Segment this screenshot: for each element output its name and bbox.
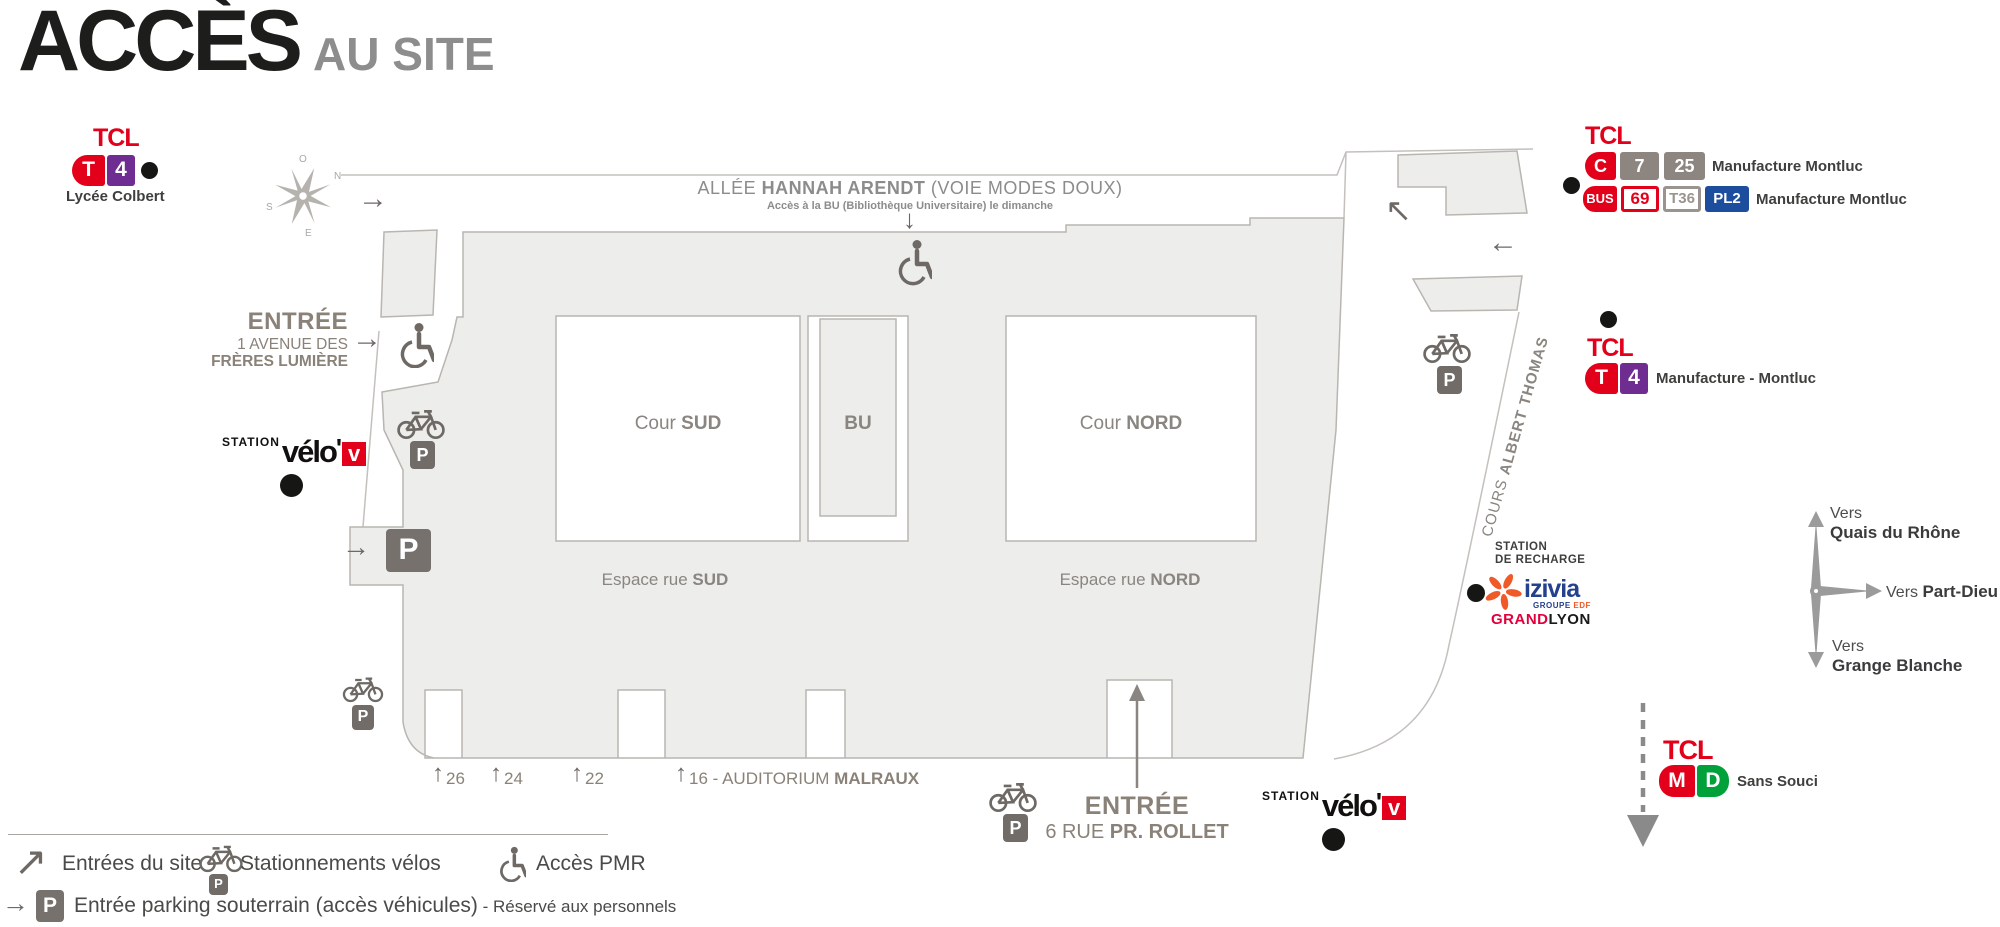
entrance-16-pre: 16 - AUDITORIUM	[689, 769, 834, 788]
entree-lumiere-arrow-icon: →	[352, 324, 382, 354]
bus-line-25-badge: 25	[1664, 152, 1705, 180]
bike-parking-icon-right	[1422, 330, 1472, 364]
legend-bike-p-badge: P	[209, 874, 228, 895]
legend-velos-label: Stationnements vélos	[240, 852, 441, 876]
bike-parking-p-badge-right: P	[1437, 366, 1462, 394]
title-main: ACCÈS	[18, 0, 299, 91]
entrance-26: ↑ 26	[432, 762, 465, 789]
entry-arrow-left-icon: ←	[1488, 228, 1518, 258]
izivia-edf: EDF	[1573, 601, 1591, 610]
allee-street-line	[341, 149, 1533, 175]
street-corner-line	[1344, 152, 1346, 218]
bus-line-pl2-badge: PL2	[1705, 186, 1749, 212]
compass-rose-icon: O N E S	[264, 154, 342, 239]
compass-n-label: N	[334, 171, 341, 182]
recharge-line1: STATION	[1495, 541, 1547, 554]
allee-pre: ALLÉE	[698, 178, 762, 198]
espace-rue-sud-label: Espace rue SUD	[565, 570, 765, 590]
espace-rue-nord-label: Espace rue NORD	[1030, 570, 1230, 590]
northwest-annex-building	[381, 230, 437, 317]
bike-parking-p-badge-left: P	[410, 441, 435, 469]
vers-right-name: Part-Dieu	[1922, 582, 1998, 601]
arrow-up-16-icon: ↑	[675, 762, 687, 786]
entree-lumiere-line1: 1 AVENUE DES	[183, 336, 348, 354]
cour-sud-label: Cour SUD	[578, 413, 778, 435]
velov-logo-word-bottom: vélo	[1322, 788, 1376, 824]
arrow-up-22-icon: ↑	[571, 762, 583, 786]
grand-lyon-lyon: LYON	[1549, 611, 1591, 628]
stop-name-t4-montluc: Manufacture - Montluc	[1656, 370, 1816, 387]
entree-lumiere-title: ENTRÉE	[183, 308, 348, 336]
cour-nord-label: Cour NORD	[1031, 413, 1231, 435]
velov-station-word-bottom: STATION	[1262, 790, 1320, 804]
velov-station-bottom: STATION vélo ' v	[1262, 788, 1406, 824]
entree-rollet-title: ENTRÉE	[1037, 792, 1237, 821]
izivia-logo-flower-icon	[1484, 573, 1522, 611]
stop-dot-colbert	[141, 162, 158, 179]
tcl-brand-metro: TCL	[1663, 735, 1712, 766]
entrance-24: ↑ 24	[490, 762, 523, 789]
espace-sud-pre: Espace rue	[602, 570, 693, 589]
compass-o-label: O	[299, 154, 307, 165]
bus-line-c-badge: C	[1585, 152, 1616, 180]
velov-station-word: STATION	[222, 436, 280, 450]
bus-line-t36-badge: T36	[1663, 186, 1701, 212]
cour-nord-bold: NORD	[1126, 413, 1182, 434]
bu-sunday-access-arrow-icon: ↓	[903, 206, 916, 232]
rollet-pre: 6 RUE	[1045, 821, 1109, 843]
entrance-22: ↑ 22	[571, 762, 604, 789]
entree-rollet-street: 6 RUE PR. ROLLET	[1037, 821, 1237, 844]
cour-sud-pre: Cour	[635, 413, 681, 434]
stop-dot-manufacture	[1563, 177, 1580, 194]
cour-sud-bold: SUD	[681, 413, 721, 434]
legend-separator	[8, 834, 608, 835]
velov-logo-v-box-bottom: v	[1382, 796, 1406, 820]
arrow-up-26-icon: ↑	[432, 762, 444, 786]
northeast-block-building	[1398, 151, 1527, 215]
vers-right-pre: Vers	[1886, 584, 1922, 601]
rollet-bold: PR. ROLLET	[1110, 821, 1229, 843]
metro-direction-dashed-arrow	[1627, 703, 1659, 847]
direction-grange-blanche: Vers Grange Blanche	[1832, 638, 1962, 677]
entree-lumiere-line2: FRÈRES LUMIÈRE	[183, 353, 348, 371]
legend-entry-arrow-icon: ↗	[14, 842, 48, 882]
title-sub: AU SITE	[313, 28, 494, 81]
velov-dot-bottom	[1322, 828, 1345, 851]
espace-nord-bold: NORD	[1150, 570, 1200, 589]
parking-entrance-p-badge: P	[386, 529, 431, 572]
allee-name: HANNAH ARENDT	[762, 178, 926, 198]
tram-line-4-badge: 4	[107, 155, 135, 186]
recharge-line2: DE RECHARGE	[1495, 554, 1585, 567]
direction-part-dieu: Vers Part-Dieu	[1886, 582, 1998, 602]
cour-nord-pre: Cour	[1080, 413, 1126, 434]
tcl-brand-right-top: TCL	[1585, 122, 1631, 151]
street-allee-hannah-arendt: ALLÉE HANNAH ARENDT (VOIE MODES DOUX)	[610, 178, 1210, 199]
izivia-brand-name: izivia	[1524, 575, 1579, 604]
izivia-groupe-edf: GROUPE EDF	[1533, 601, 1591, 610]
espace-sud-bold: SUD	[692, 570, 728, 589]
tram-line-t-badge-montluc: T	[1585, 363, 1618, 394]
entree-rollet-label: ENTRÉE 6 RUE PR. ROLLET	[1037, 792, 1237, 844]
grand-lyon-grand: GRAND	[1491, 611, 1549, 628]
tcl-brand-t4-montluc: TCL	[1587, 334, 1633, 363]
stop-name-manufacture-row1: Manufacture Montluc	[1712, 158, 1863, 175]
vers-up-name: Quais du Rhône	[1830, 523, 1960, 542]
espace-nord-pre: Espace rue	[1060, 570, 1151, 589]
entrance-16-bold: MALRAUX	[834, 769, 919, 788]
metro-line-d-badge: D	[1697, 765, 1729, 797]
velov-logo-word: vélo	[282, 434, 336, 470]
bus-line-69-badge: 69	[1621, 186, 1659, 212]
entrance-22-number: 22	[585, 769, 604, 789]
vers-down-pre: Vers	[1832, 638, 1962, 656]
entree-freres-lumiere-label: ENTRÉE 1 AVENUE DES FRÈRES LUMIÈRE	[183, 308, 348, 371]
metro-m-badge: M	[1659, 765, 1695, 797]
direction-quais-du-rhone: Vers Quais du Rhône	[1830, 505, 1960, 544]
bike-parking-p-badge-bottom-left: P	[352, 705, 374, 730]
stop-name-colbert: Lycée Colbert	[66, 188, 165, 205]
access-site-map-page: O N E S ACCÈS AU SITE TCL	[0, 0, 2000, 927]
legend-pmr-icon	[498, 846, 526, 882]
entrance-16-label: 16 - AUDITORIUM MALRAUX	[689, 769, 919, 789]
east-block-building	[1413, 276, 1522, 311]
page-title: ACCÈS AU SITE	[18, 0, 495, 91]
legend-bike-icon	[198, 842, 244, 873]
legend-parking-arrow-icon: →	[2, 890, 29, 917]
stop-dot-t4-montluc	[1600, 311, 1617, 328]
entry-arrow-up-left-icon: ↖	[1385, 194, 1412, 226]
legend-parking-note: - Réservé aux personnels	[478, 897, 676, 916]
pmr-access-icon-left	[398, 322, 434, 368]
bus-line-7-badge: 7	[1620, 152, 1659, 180]
velov-logo-v-box: v	[342, 442, 366, 466]
bus-badge: BUS	[1583, 186, 1617, 212]
velov-station-left: STATION vélo ' v	[222, 434, 366, 470]
vers-down-name: Grange Blanche	[1832, 656, 1962, 675]
legend-entrees-label: Entrées du site	[62, 852, 202, 876]
pmr-access-icon-top	[896, 238, 932, 286]
parking-entrance-arrow-icon: →	[342, 533, 370, 561]
compass-e-label: E	[305, 228, 312, 239]
stop-name-manufacture-row2: Manufacture Montluc	[1756, 191, 1907, 208]
arrow-up-24-icon: ↑	[490, 762, 502, 786]
bu-label: BU	[808, 413, 908, 435]
legend-parking-label: Entrée parking souterrain (accès véhicul…	[74, 894, 676, 918]
compass-s-label: S	[266, 202, 273, 213]
entrance-16-auditorium: ↑ 16 - AUDITORIUM MALRAUX	[675, 762, 919, 789]
legend-pmr-label: Accès PMR	[536, 852, 646, 876]
tram-line-4-badge-montluc: 4	[1620, 363, 1648, 394]
legend-parking-main: Entrée parking souterrain (accès véhicul…	[74, 894, 478, 917]
bike-parking-icon-bottom-center	[988, 779, 1038, 813]
bike-parking-p-badge-bottom-center: P	[1003, 814, 1028, 842]
entrance-26-number: 26	[446, 769, 465, 789]
tram-line-t-badge: T	[72, 155, 105, 186]
grand-lyon-logo: GRANDLYON	[1491, 611, 1591, 628]
entree-rollet-arrow	[1129, 684, 1145, 788]
recharge-dot	[1467, 584, 1485, 602]
entrance-24-number: 24	[504, 769, 523, 789]
bike-parking-icon-bottom-left	[342, 674, 384, 703]
bike-parking-icon-left	[396, 406, 446, 440]
legend-parking-p-badge: P	[36, 890, 64, 922]
velov-dot-left	[280, 474, 303, 497]
site-entry-arrow-top-left-icon: →	[358, 184, 388, 214]
tcl-brand-colbert: TCL	[93, 124, 139, 153]
allee-post: (VOIE MODES DOUX)	[925, 178, 1122, 198]
stop-name-sans-souci: Sans Souci	[1737, 773, 1818, 790]
vers-up-pre: Vers	[1830, 505, 1960, 523]
izivia-groupe: GROUPE	[1533, 601, 1573, 610]
